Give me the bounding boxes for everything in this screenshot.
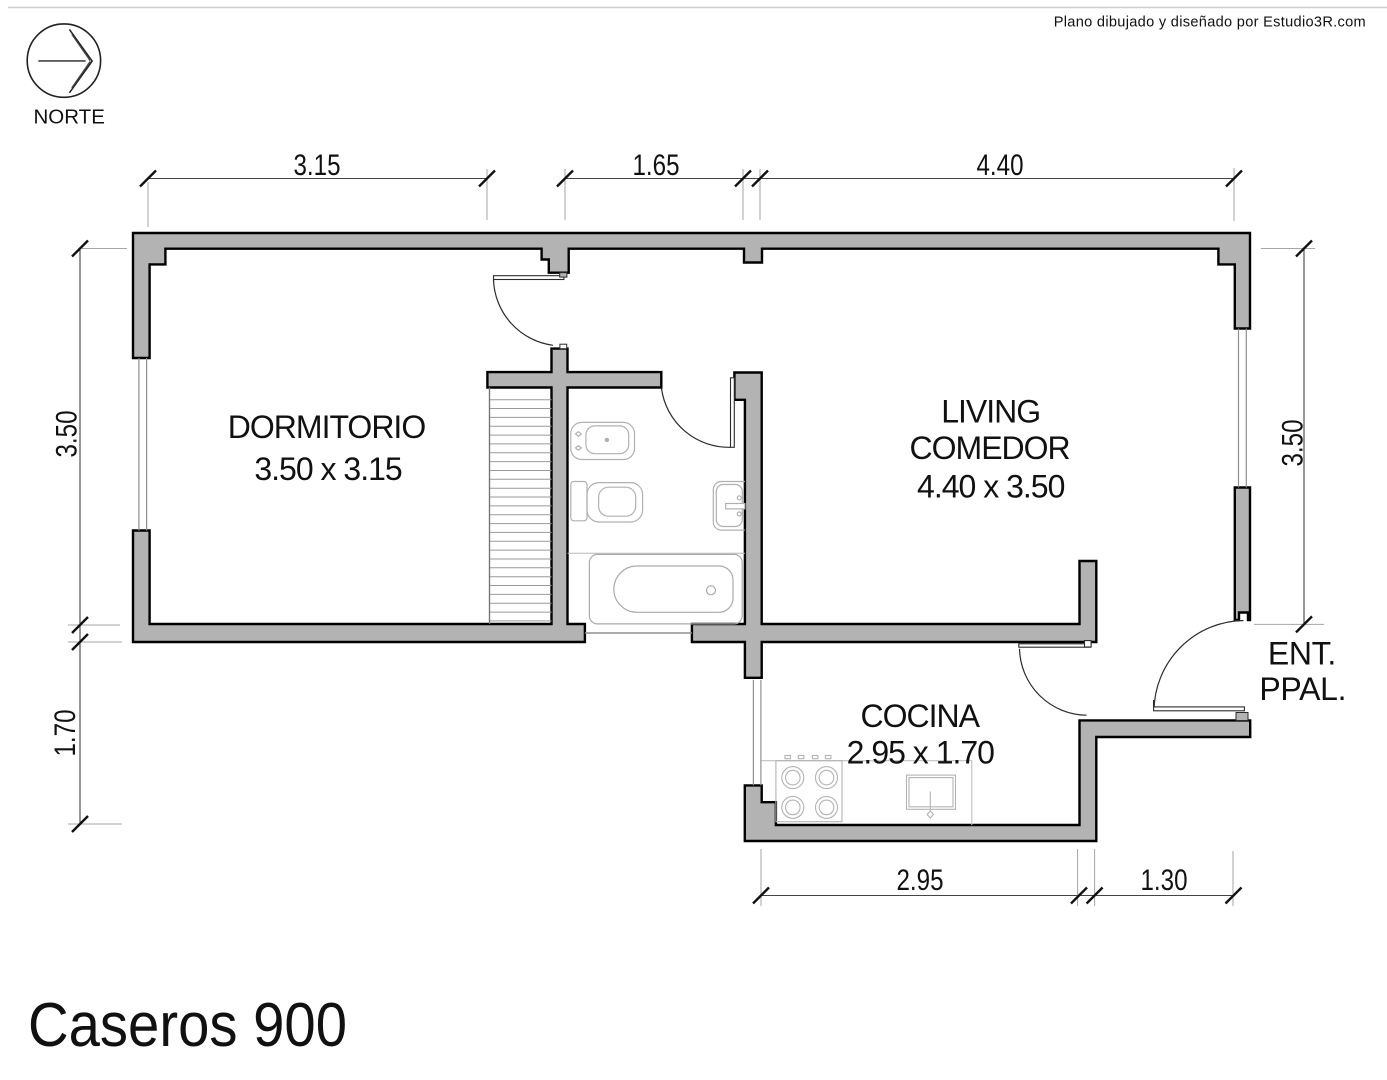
svg-text:2.95: 2.95 (897, 864, 944, 897)
svg-text:COCINA: COCINA (860, 698, 980, 734)
svg-text:1.30: 1.30 (1141, 864, 1188, 897)
svg-text:4.40 x 3.50: 4.40 x 3.50 (917, 469, 1065, 505)
svg-text:DORMITORIO: DORMITORIO (228, 409, 426, 445)
svg-text:LIVING: LIVING (941, 394, 1040, 430)
svg-text:COMEDOR: COMEDOR (910, 430, 1070, 466)
svg-text:Caseros 900: Caseros 900 (28, 991, 347, 1060)
svg-text:ENT.: ENT. (1268, 636, 1336, 672)
svg-text:3.50 x 3.15: 3.50 x 3.15 (254, 451, 402, 487)
svg-text:2.95 x 1.70: 2.95 x 1.70 (847, 735, 995, 771)
svg-text:3.50: 3.50 (51, 411, 84, 458)
svg-text:4.40: 4.40 (977, 149, 1024, 182)
svg-text:1.65: 1.65 (633, 149, 680, 182)
svg-text:NORTE: NORTE (34, 105, 105, 128)
svg-text:1.70: 1.70 (49, 710, 82, 757)
svg-text:Plano dibujado y diseñado por: Plano dibujado y diseñado por Estudio3R.… (1054, 15, 1366, 31)
svg-text:3.15: 3.15 (294, 149, 341, 182)
svg-text:3.50: 3.50 (1277, 420, 1310, 467)
svg-text:PPAL.: PPAL. (1259, 671, 1346, 707)
